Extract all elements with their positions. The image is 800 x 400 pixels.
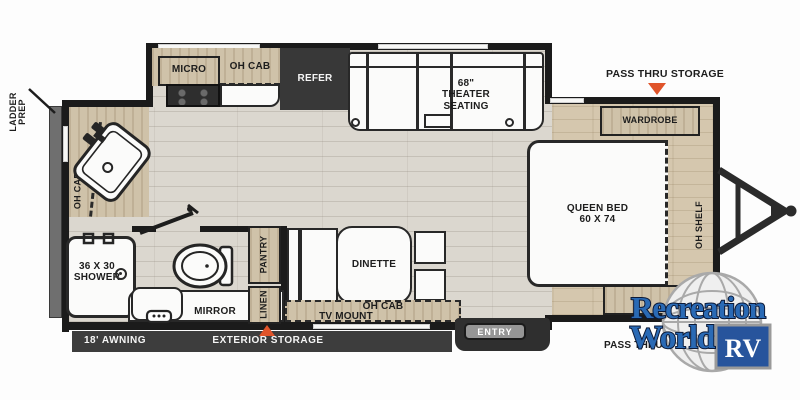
rear-ladder-strip <box>49 106 62 318</box>
wardrobe-label: WARDROBE <box>602 112 698 128</box>
awning-label: 18' AWNING <box>70 335 160 347</box>
window-living <box>378 44 488 49</box>
theater-seatback-line <box>350 66 542 68</box>
logo-rv-badge: RV <box>725 334 762 363</box>
kitchen-counter <box>220 84 280 107</box>
bath-door <box>133 200 207 238</box>
vanity-sink <box>145 308 175 324</box>
dinette-chair-bottom <box>414 269 446 301</box>
kitchen-oh-cab-label: OH CAB <box>222 60 278 74</box>
pass-thru-arrow-icon <box>648 83 666 95</box>
shower-drain <box>115 268 127 280</box>
refer-label: REFER <box>282 72 348 86</box>
toilet <box>170 240 244 294</box>
wall-bath-b <box>200 226 250 232</box>
recreation-world-rv-logo: Recreation World RV <box>595 255 800 400</box>
ladder-prep-label: LADDERPREP <box>5 82 31 142</box>
window-bedroom <box>550 98 584 103</box>
shower-faucet <box>82 232 118 246</box>
tv-mount-label: TV MOUNT <box>300 311 392 322</box>
window-dinette <box>313 324 430 329</box>
dinette-bench-seat <box>300 228 338 302</box>
micro-label: MICRO <box>160 62 218 78</box>
exterior-storage-arrow-icon <box>259 325 275 336</box>
trailer-hitch <box>713 160 800 262</box>
mirror-label: MIRROR <box>186 306 244 318</box>
theater-foot-left <box>351 118 360 127</box>
oh-shelf-label: OH SHELF <box>693 190 707 260</box>
entry-badge: ENTRY <box>464 323 526 340</box>
wall-step-right <box>545 43 552 104</box>
dinette-bench-back <box>287 228 300 302</box>
theater-label: 68"THEATERSEATING <box>426 74 506 116</box>
theater-cupholder <box>424 114 452 128</box>
dinette-chair-top <box>414 231 446 264</box>
exterior-storage-label: EXTERIOR STORAGE <box>198 335 338 347</box>
dinette-label: DINETTE <box>340 258 408 272</box>
pass-thru-top-label: PASS THRU STORAGE <box>606 68 724 81</box>
logo-name-line2: World <box>630 320 715 356</box>
cooktop <box>166 84 220 107</box>
queen-bed-label: QUEEN BED60 X 74 <box>540 198 655 230</box>
theater-foot-right <box>505 118 514 127</box>
rv-floorplan: LADDERPREP MICRO OH CAB REFER 68"THEATER… <box>0 0 800 400</box>
